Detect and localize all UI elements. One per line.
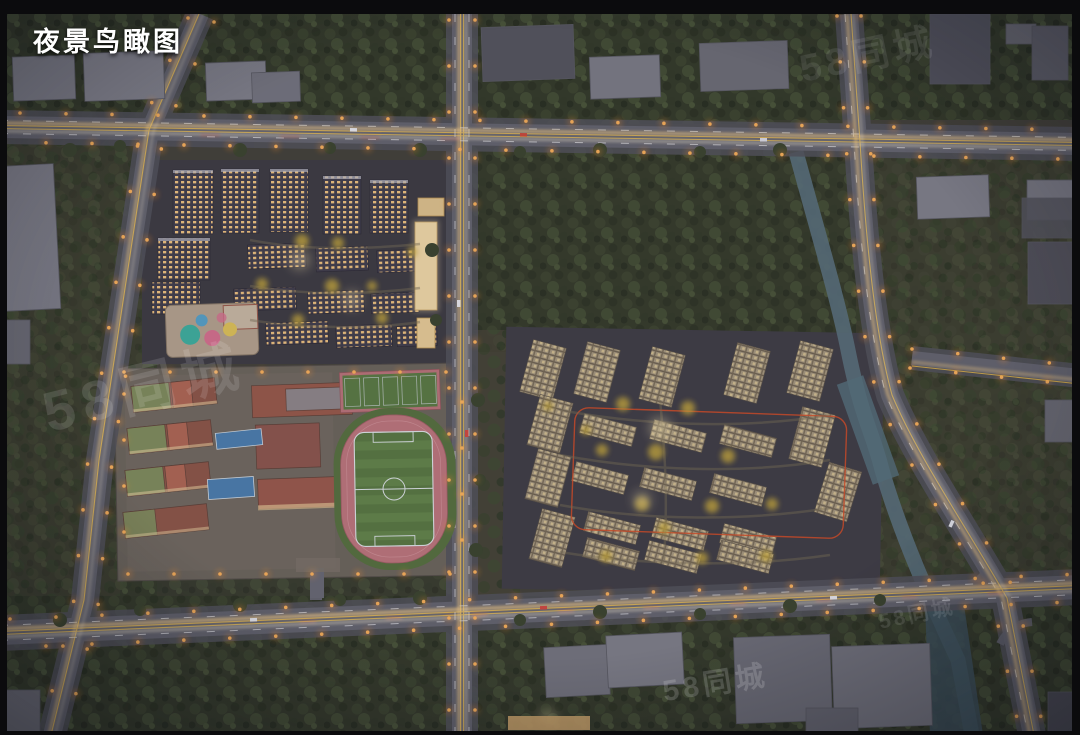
night-aerial-render [0, 0, 1080, 735]
vignette [7, 14, 1072, 733]
night-aerial-screenshot: 夜景鸟瞰图 58同城 58同城 58同城 58同城 [0, 0, 1080, 735]
view-title-label: 夜景鸟瞰图 [33, 20, 183, 59]
